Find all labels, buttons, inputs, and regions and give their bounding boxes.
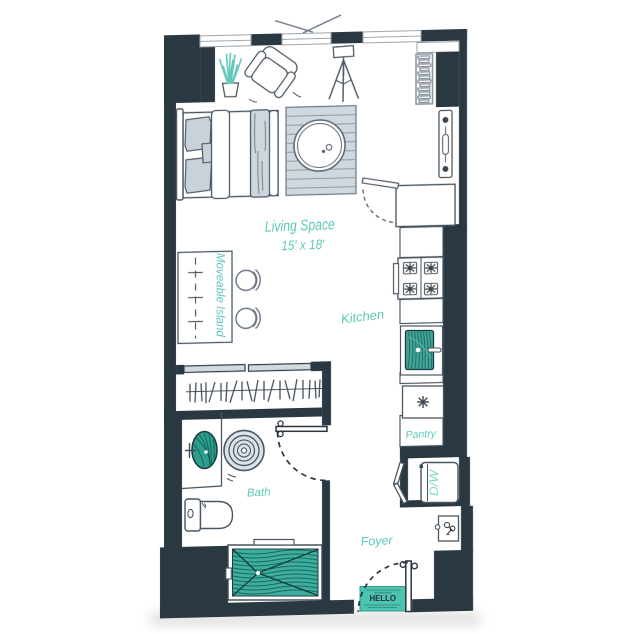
svg-text:Living Space: Living Space <box>265 216 336 235</box>
svg-text:Foyer: Foyer <box>360 533 393 549</box>
svg-text:D/W: D/W <box>427 468 441 496</box>
svg-text:Pantry: Pantry <box>405 428 437 442</box>
svg-text:HELLO: HELLO <box>370 593 397 603</box>
svg-text:Moveable Island: Moveable Island <box>214 253 226 337</box>
svg-text:Bath: Bath <box>247 486 271 499</box>
svg-text:15' x 18': 15' x 18' <box>281 237 325 254</box>
